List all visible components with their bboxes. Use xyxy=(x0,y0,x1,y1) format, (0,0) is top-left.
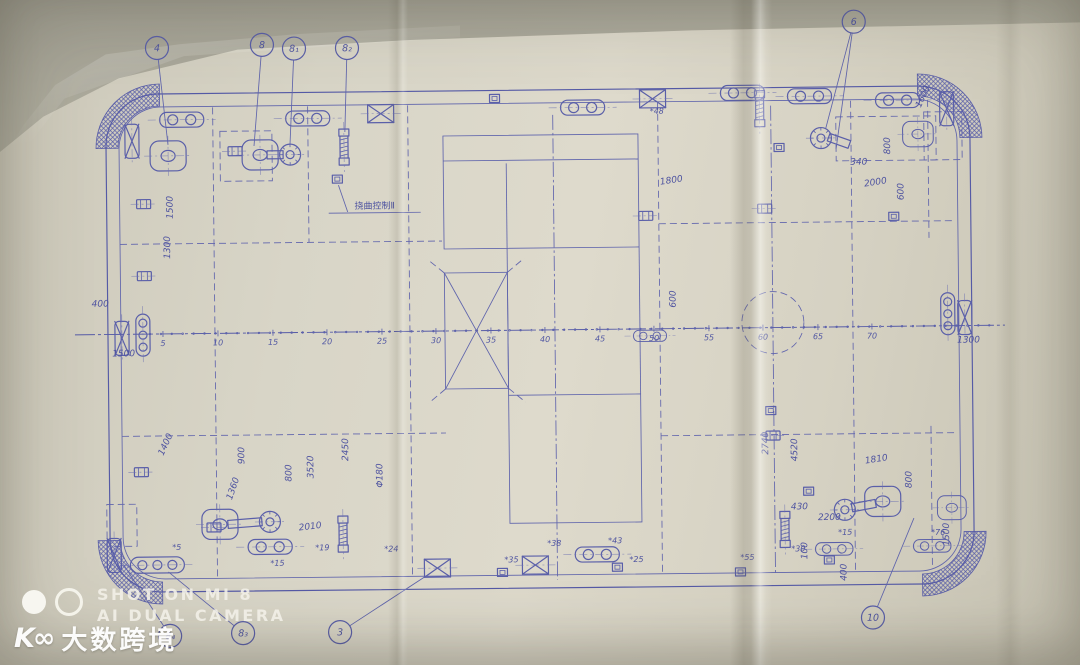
svg-text:*38: *38 xyxy=(547,539,561,548)
balloon-6: 6 xyxy=(825,10,867,149)
balloon-3: 3 xyxy=(328,573,431,644)
fitting-eyeplate xyxy=(222,147,248,156)
fitting-cleat2 xyxy=(236,539,304,555)
svg-text:800: 800 xyxy=(904,471,914,489)
svg-text:35: 35 xyxy=(486,335,496,344)
svg-text:*15: *15 xyxy=(838,528,852,537)
svg-text:*24: *24 xyxy=(384,544,398,553)
brand-watermark-text: 大数跨境 xyxy=(61,620,177,657)
fitting-smallSq xyxy=(489,94,499,102)
svg-text:45: 45 xyxy=(595,334,605,343)
fitting-screwV xyxy=(338,509,349,559)
svg-text:20: 20 xyxy=(322,337,332,346)
fitting-eyeplate xyxy=(131,200,157,209)
svg-text:1360: 1360 xyxy=(225,476,242,501)
svg-text:10: 10 xyxy=(867,613,879,624)
svg-text:2740: 2740 xyxy=(761,431,771,454)
fitting-xpad xyxy=(361,104,401,122)
svg-text:600: 600 xyxy=(896,183,906,201)
fitting-screwV xyxy=(780,504,791,554)
fitting-chock xyxy=(932,491,971,523)
fitting-eyeplate xyxy=(128,468,154,477)
fitting-chock xyxy=(897,117,938,151)
svg-text:1800: 1800 xyxy=(659,174,683,187)
svg-text:2010: 2010 xyxy=(298,521,322,534)
svg-text:400: 400 xyxy=(92,300,110,310)
svg-text:1500: 1500 xyxy=(112,349,135,359)
svg-text:8: 8 xyxy=(259,40,265,51)
fitting-link-bar xyxy=(228,518,263,529)
svg-text:*19: *19 xyxy=(315,543,329,552)
svg-text:55: 55 xyxy=(704,333,714,342)
fitting-xpad xyxy=(632,90,672,108)
camera-lens-icon xyxy=(22,590,46,614)
corner-hatch-pad xyxy=(95,84,160,149)
svg-text:600: 600 xyxy=(669,290,679,308)
svg-text:*5: *5 xyxy=(172,543,181,552)
fitting-smallSq xyxy=(774,143,784,151)
fitting-winch xyxy=(255,511,285,532)
fitting-screwV xyxy=(339,122,350,172)
svg-text:10: 10 xyxy=(213,338,223,347)
fitting-rollerV3 xyxy=(136,306,151,364)
fitting-smallSq xyxy=(804,487,814,495)
fitting-screwV xyxy=(754,84,765,134)
plan-group: 5101520253035404550556065704001500150013… xyxy=(72,9,1009,649)
svg-text:30: 30 xyxy=(431,336,441,345)
svg-text:8₂: 8₂ xyxy=(342,43,352,54)
fitting-xpad xyxy=(515,556,555,574)
fitting-rollerV3 xyxy=(940,285,955,343)
svg-text:Φ180: Φ180 xyxy=(375,463,385,488)
fitting-bollardX xyxy=(125,117,140,165)
corner-hatch-pad xyxy=(917,73,982,138)
svg-text:25: 25 xyxy=(377,337,387,346)
brand-watermark: K∞ 大数跨境 xyxy=(14,620,177,657)
svg-text:6: 6 xyxy=(851,17,857,28)
fitting-cleat2 xyxy=(148,112,216,128)
fitting-smallSq xyxy=(889,212,899,220)
svg-text:3520: 3520 xyxy=(306,455,316,478)
fitting-bollardX xyxy=(958,293,973,341)
svg-text:1300: 1300 xyxy=(957,335,980,345)
fitting-smallSq xyxy=(824,556,834,564)
svg-text:400: 400 xyxy=(839,563,849,581)
svg-text:*76: *76 xyxy=(931,528,945,537)
fitting-cleat2 xyxy=(775,88,843,104)
photographed-blueprint: 5101520253035404550556065704001500150013… xyxy=(0,0,1080,665)
engineering-drawing: 5101520253035404550556065704001500150013… xyxy=(0,0,1080,665)
svg-text:2450: 2450 xyxy=(341,438,351,461)
fitting-chock xyxy=(196,504,244,545)
svg-text:*35: *35 xyxy=(504,555,518,564)
fitting-xpad xyxy=(417,559,457,577)
svg-text:340: 340 xyxy=(850,158,868,168)
fitting-winch xyxy=(806,127,836,148)
svg-text:800: 800 xyxy=(284,464,294,482)
svg-text:5: 5 xyxy=(160,339,165,348)
svg-text:800: 800 xyxy=(883,137,893,155)
svg-text:4520: 4520 xyxy=(790,438,800,461)
fitting-eyeplate xyxy=(752,204,778,213)
fitting-smallSq xyxy=(612,563,622,571)
fitting-winch xyxy=(275,144,305,165)
camera-lens-ring-icon xyxy=(55,588,83,616)
svg-text:*25: *25 xyxy=(629,555,643,564)
svg-text:3: 3 xyxy=(337,627,343,638)
svg-text:8₁: 8₁ xyxy=(289,44,299,55)
svg-text:2200: 2200 xyxy=(818,513,841,523)
svg-text:430: 430 xyxy=(791,502,809,512)
svg-text:1300: 1300 xyxy=(163,236,173,259)
camera-watermark-line1: SHOT ON MI 8 xyxy=(97,584,286,605)
svg-text:*15: *15 xyxy=(270,559,284,568)
fitting-smallSq xyxy=(766,407,776,415)
svg-text:*43: *43 xyxy=(608,536,622,545)
svg-text:4: 4 xyxy=(154,43,160,54)
fitting-smallSq xyxy=(332,175,342,183)
fitting-smallSq xyxy=(735,568,745,576)
svg-text:40: 40 xyxy=(540,335,550,344)
svg-text:70: 70 xyxy=(867,331,877,340)
svg-text:*55: *55 xyxy=(740,553,754,562)
svg-text:挠曲控制Ⅱ: 挠曲控制Ⅱ xyxy=(354,200,395,212)
svg-text:8₃: 8₃ xyxy=(238,628,248,639)
svg-text:*48: *48 xyxy=(650,107,664,116)
svg-text:2000: 2000 xyxy=(863,176,887,189)
brand-logo-icon: K∞ xyxy=(14,623,53,654)
fitting-eyeplate xyxy=(633,211,659,220)
balloon-10: 10 xyxy=(860,518,915,629)
svg-text:60: 60 xyxy=(758,333,768,342)
svg-text:1810: 1810 xyxy=(864,453,888,466)
svg-text:15: 15 xyxy=(268,338,278,347)
svg-text:900: 900 xyxy=(237,447,247,465)
fitting-eyeplate xyxy=(131,272,157,281)
balloon-8₁: 8₁ xyxy=(282,37,306,145)
svg-text:65: 65 xyxy=(813,332,823,341)
fitting-chock xyxy=(144,136,192,177)
svg-text:1500: 1500 xyxy=(166,196,176,219)
fitting-cleat2 xyxy=(563,547,631,563)
svg-text:*30: *30 xyxy=(791,544,805,553)
balloon-8: 8 xyxy=(250,33,274,146)
fitting-cleat2 xyxy=(805,542,863,555)
balloon-8₂: 8₂ xyxy=(335,36,359,132)
